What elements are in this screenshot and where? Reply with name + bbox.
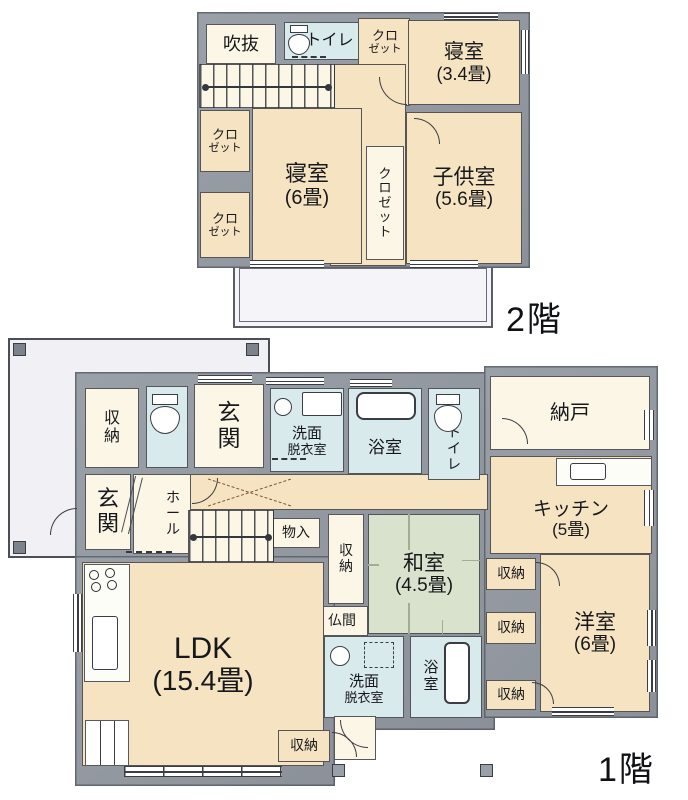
window-mid-line [649, 410, 651, 440]
carport-post [246, 343, 259, 356]
tatami-line [368, 564, 379, 566]
floor-plan-canvas: 吹抜トイレクロゼット寝室(3.4畳)クロゼットクロゼット寝室(6畳)クロゼット子… [0, 0, 688, 800]
window [266, 377, 324, 385]
toilet-icon [434, 394, 462, 432]
bathroom-top-label: 浴室 [368, 438, 402, 457]
bedroom-6-size-label: (6畳) [285, 187, 329, 209]
storage-mono-ire: 物入 [272, 518, 320, 548]
tatami-line [442, 620, 444, 634]
exterior-post [332, 764, 345, 777]
bathroom-bottom-label: 浴室 [423, 660, 438, 694]
sink-icon [274, 398, 292, 416]
balcony-inner-line [239, 268, 487, 322]
window-mid-line [350, 383, 392, 385]
closet-door-line [114, 721, 116, 765]
window-mid-line [124, 771, 282, 773]
storeroom-nando-label: 納戸 [550, 402, 590, 424]
window-mid-line [649, 490, 651, 526]
closet-2f-top-size-label: ゼット [369, 43, 402, 55]
closet-folding-door [85, 720, 129, 766]
storage-top-left: 収納 [85, 388, 139, 468]
stairs-handrail [204, 86, 330, 88]
sink-icon [92, 616, 118, 670]
washroom-top-label: 洗面脱衣室 [287, 426, 326, 457]
storage-center: 収納 [328, 514, 364, 604]
carport-post [13, 343, 26, 356]
washing-machine-icon [364, 642, 394, 668]
tatami-line [462, 560, 480, 562]
tatami-lines [368, 514, 480, 634]
toilet-2f-label: トイレ [305, 32, 353, 50]
washroom-bottom-size-label: 脱衣室 [344, 691, 383, 706]
bedroom-3-4: 寝室(3.4畳) [408, 20, 520, 105]
window-mid-line [77, 594, 79, 652]
sink-icon [330, 646, 350, 666]
balcony [233, 262, 493, 328]
sink-icon [570, 463, 606, 480]
kids-room-size-label: (5.6畳) [433, 189, 496, 210]
vent-dash [126, 551, 172, 554]
hall-1f-label: ホール [166, 490, 180, 537]
western-room-size-label: (6畳) [574, 634, 616, 655]
window [198, 375, 252, 383]
washroom-top-size-label: 脱衣室 [287, 443, 326, 458]
entrance-top: 玄関 [194, 384, 264, 468]
window [552, 707, 614, 716]
butsuma-label: 仏間 [328, 613, 356, 629]
vent-dash [272, 458, 306, 461]
storage-right-3-label: 収納 [497, 687, 525, 703]
window-mid-line [266, 381, 324, 383]
window [410, 260, 478, 268]
closet-2f-upper-left-size-label: ゼット [209, 142, 242, 154]
tatami-line [408, 603, 410, 634]
floor-1-label: 1階 [598, 742, 655, 791]
stove-burner [105, 568, 115, 578]
window [521, 30, 529, 74]
bedroom-6-label: 寝室(6畳) [285, 162, 329, 209]
stairs-handrail [192, 536, 271, 538]
toilet-icon [288, 25, 310, 55]
window [250, 260, 324, 268]
closet-2f-lower-left-size-label: ゼット [209, 226, 242, 238]
toilet-icon [150, 394, 180, 434]
ldk-label: LDK(15.4畳) [152, 632, 253, 697]
storage-right-1-label: 収納 [497, 566, 525, 582]
window-mid-line [525, 30, 527, 74]
toilet-1f-right-label: トイレ [447, 425, 461, 472]
window [444, 13, 498, 20]
window-mid-line [552, 711, 614, 713]
ldk-size-label: (15.4畳) [152, 665, 253, 696]
storage-center-label: 収納 [339, 543, 353, 574]
washroom-bottom-label: 洗面脱衣室 [344, 674, 383, 705]
western-room-label: 洋室(6畳) [574, 611, 616, 656]
exterior-post [480, 764, 493, 777]
kitchen-size-label: (5畳) [533, 520, 609, 539]
toilet-tank [152, 394, 177, 405]
closet-2f-lower-left-label: クロゼット [209, 212, 242, 239]
stove-burner [89, 570, 99, 580]
floor1-stairs [188, 510, 274, 562]
bathtub-icon [356, 392, 416, 420]
toilet-tank [436, 394, 460, 405]
storage-mono-ire-label: 物入 [282, 525, 310, 541]
kitchen-label: キッチン(5畳) [533, 499, 609, 539]
floor2-stairs [199, 64, 335, 108]
washing-machine-icon [302, 392, 342, 416]
closet-door-line [100, 721, 102, 765]
vent-dash [292, 56, 326, 59]
entrance-step-cross [208, 478, 292, 508]
bathtub-icon [444, 642, 470, 704]
hall-1f: ホール [133, 474, 191, 554]
window-mid-line [651, 660, 653, 692]
closet-2f-upper-left: クロゼット [200, 110, 250, 172]
stove-burner [107, 580, 117, 590]
toilet-bowl [288, 34, 310, 55]
window [350, 379, 392, 387]
stove-icon [88, 568, 122, 594]
closet-2f-lower-left: クロゼット [200, 192, 250, 258]
closet-2f-top-label: クロゼット [369, 29, 402, 56]
kids-room-label: 子供室(5.6畳) [433, 166, 496, 211]
toilet-bowl [150, 406, 180, 434]
toilet-tank [290, 25, 309, 33]
bedroom-6: 寝室(6畳) [252, 108, 362, 264]
window [73, 594, 82, 652]
stove-burner [91, 582, 101, 592]
storage-right-2: 収納 [486, 612, 536, 644]
toilet-bowl [434, 405, 462, 432]
void-fukinuke-label: 吹抜 [223, 34, 259, 54]
closet-2f-upper-left-label: クロゼット [209, 128, 242, 155]
carport-post [13, 541, 26, 554]
tatami-line [408, 514, 410, 550]
floor-2-label: 2階 [506, 292, 563, 341]
storage-right-2-label: 収納 [497, 620, 525, 636]
agari-kamachi-step [124, 476, 138, 534]
window-mid-line [651, 610, 653, 646]
closet-2f-center-label: クロゼット [378, 167, 391, 240]
storage-right-1: 収納 [486, 558, 536, 590]
entrance-left-label: 玄関 [97, 487, 119, 536]
bedroom-3-4-size-label: (3.4畳) [436, 64, 491, 84]
void-fukinuke: 吹抜 [206, 24, 276, 64]
window [644, 410, 654, 440]
window-mid-line [444, 16, 498, 18]
bedroom-3-4-label: 寝室(3.4畳) [436, 41, 491, 84]
storage-ldk-label: 収納 [290, 738, 318, 754]
window-mid-line [410, 264, 478, 266]
window [124, 766, 282, 777]
window [644, 490, 654, 526]
closet-2f-top: クロゼット [360, 20, 410, 64]
window-mid-line [250, 264, 324, 266]
storage-right-3: 収納 [486, 680, 536, 710]
closet-2f-center: クロゼット [366, 146, 404, 260]
storage-top-left-label: 収納 [104, 410, 120, 446]
window [647, 610, 656, 646]
entrance-top-label: 玄関 [218, 400, 241, 452]
storage-ldk: 収納 [278, 730, 330, 762]
window-mid-line [198, 379, 252, 381]
window [647, 660, 656, 692]
